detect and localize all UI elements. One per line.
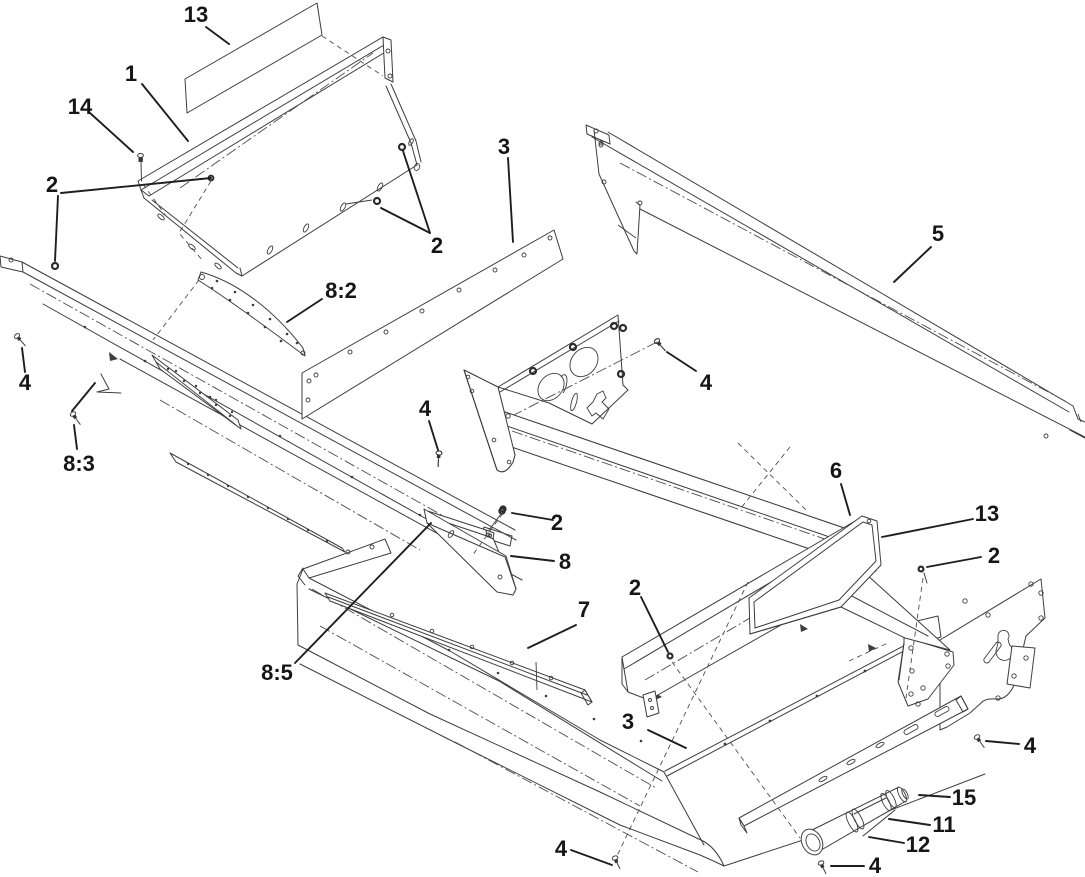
svg-text:7: 7 [578, 597, 590, 622]
svg-text:8:2: 8:2 [325, 278, 357, 303]
svg-text:8:3: 8:3 [63, 451, 95, 476]
svg-text:6: 6 [830, 458, 842, 483]
svg-text:4: 4 [19, 370, 32, 395]
svg-text:4: 4 [869, 853, 882, 877]
svg-text:4: 4 [555, 836, 568, 861]
svg-text:4: 4 [1024, 733, 1037, 758]
svg-text:2: 2 [629, 575, 641, 600]
svg-text:2: 2 [46, 172, 58, 197]
svg-text:8:5: 8:5 [261, 660, 293, 685]
svg-text:2: 2 [551, 510, 563, 535]
svg-text:13: 13 [184, 2, 208, 27]
svg-text:4: 4 [700, 370, 713, 395]
svg-text:15: 15 [952, 785, 976, 810]
svg-text:12: 12 [906, 832, 930, 857]
svg-text:1: 1 [125, 61, 137, 86]
svg-text:3: 3 [498, 134, 510, 159]
svg-text:5: 5 [932, 221, 944, 246]
svg-text:8: 8 [559, 549, 571, 574]
svg-text:3: 3 [622, 709, 634, 734]
svg-text:14: 14 [68, 94, 93, 119]
svg-text:2: 2 [988, 543, 1000, 568]
svg-text:13: 13 [975, 501, 999, 526]
svg-text:4: 4 [419, 396, 432, 421]
svg-text:2: 2 [431, 233, 443, 258]
svg-text:11: 11 [932, 812, 955, 837]
